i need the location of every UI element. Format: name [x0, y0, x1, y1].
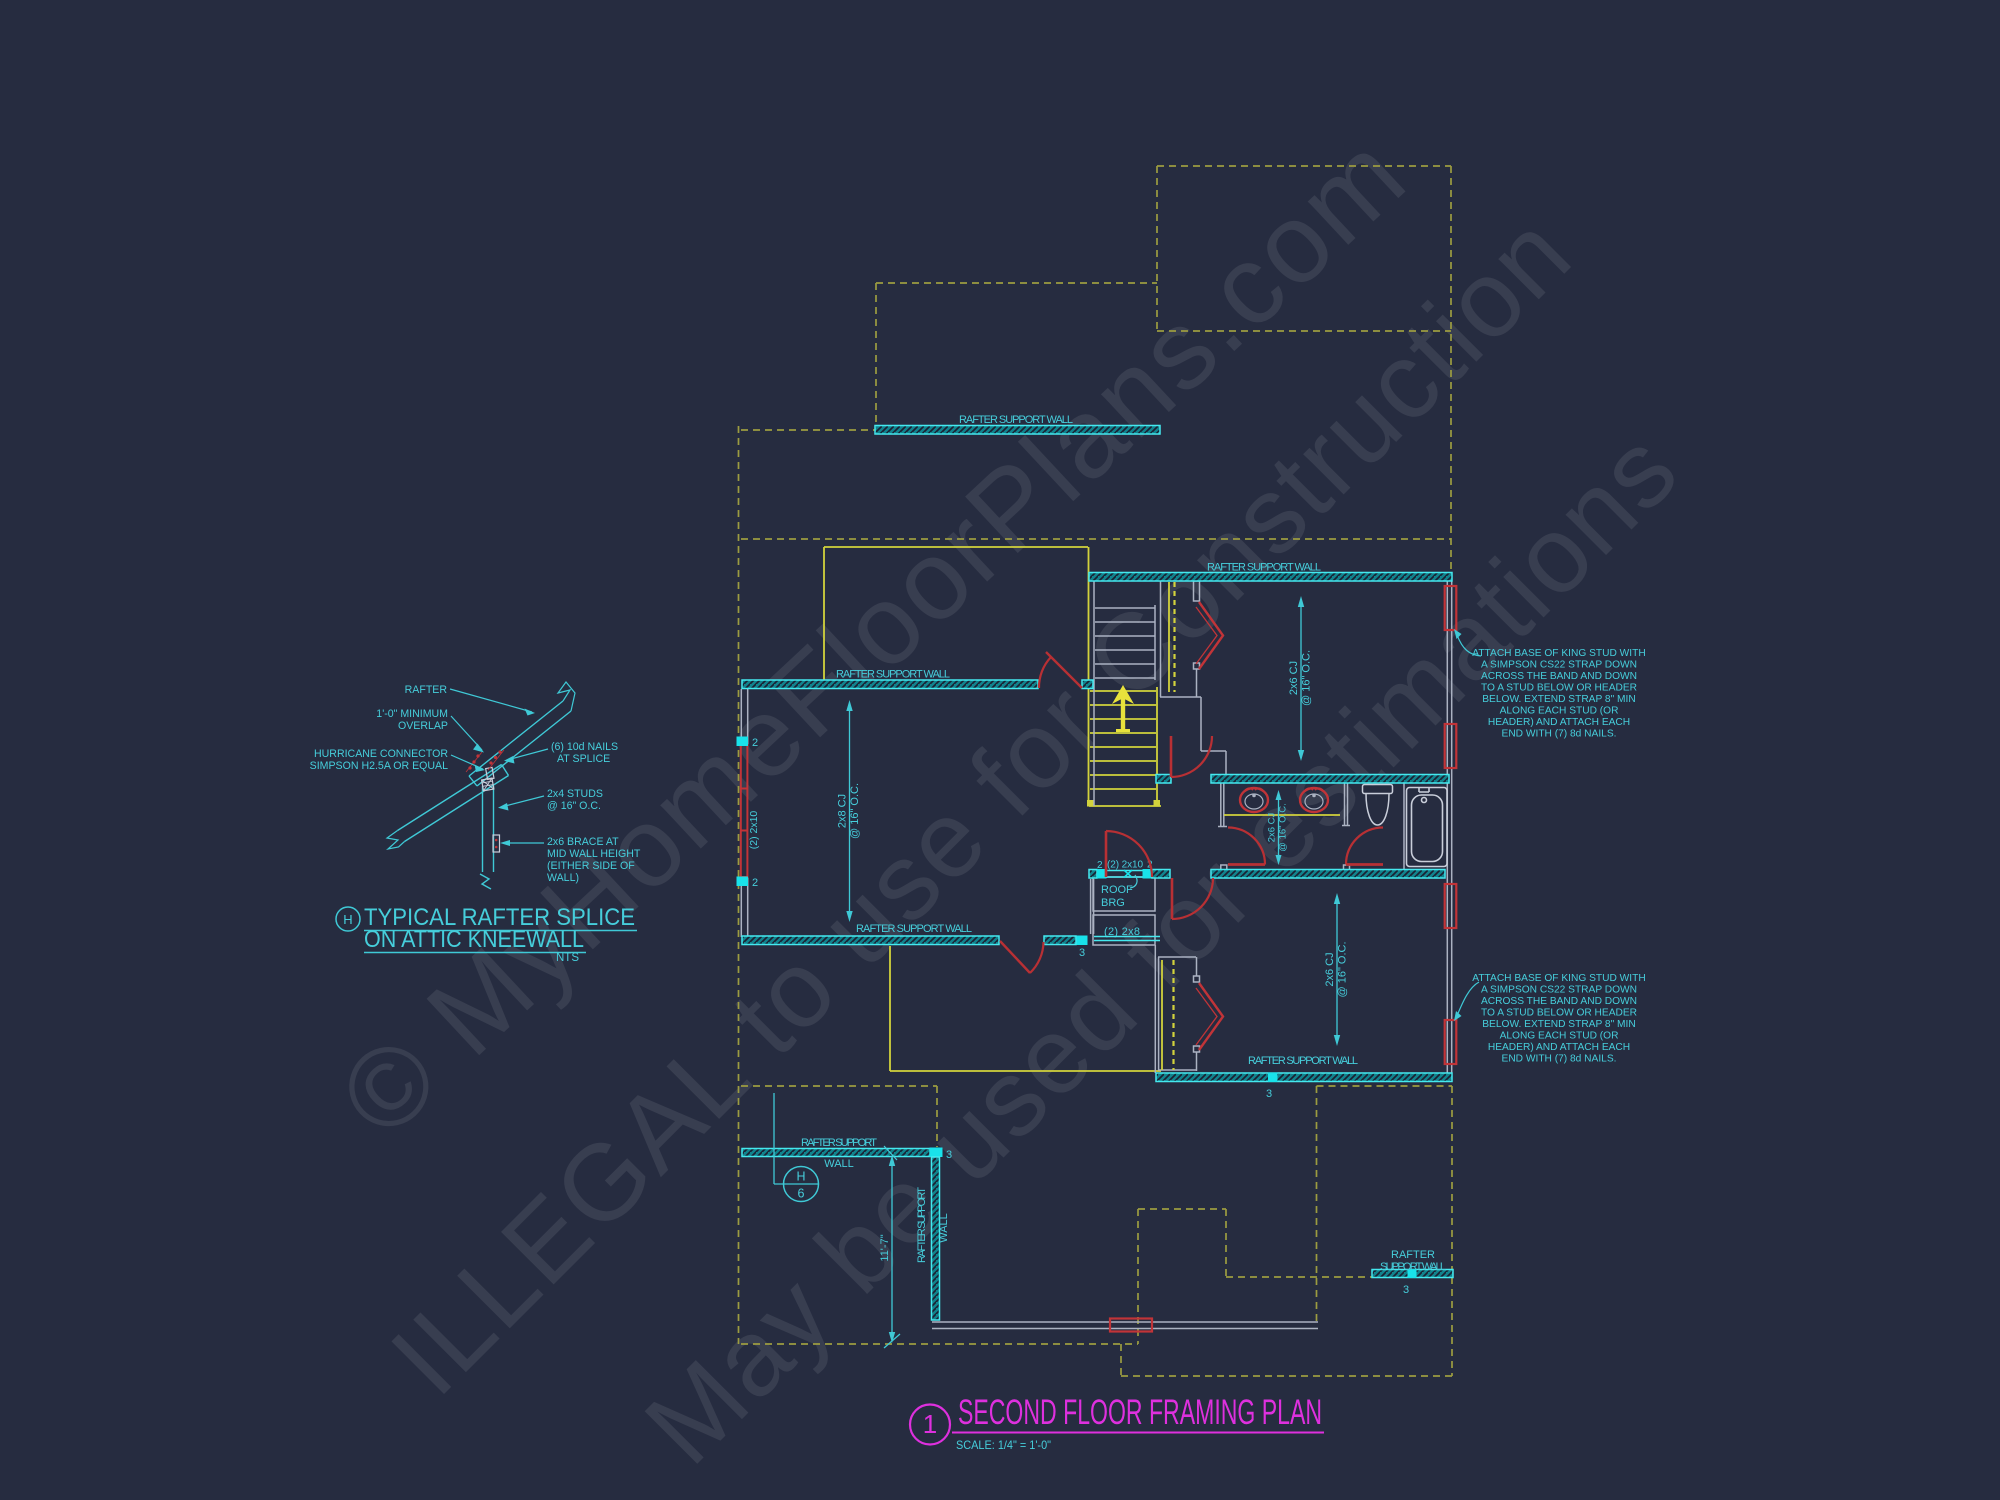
svg-text:WALL): WALL) — [547, 872, 579, 884]
svg-text:AT SPLICE: AT SPLICE — [557, 753, 610, 765]
svg-text:TO A STUD BELOW OR HEADER: TO A STUD BELOW OR HEADER — [1481, 683, 1637, 694]
svg-text:WALL: WALL — [824, 1158, 854, 1170]
svg-text:HURRICANE CONNECTOR: HURRICANE CONNECTOR — [314, 748, 448, 760]
svg-text:2x6 CJ: 2x6 CJ — [1267, 812, 1278, 842]
svg-text:6: 6 — [798, 1187, 805, 1201]
svg-text:2x6 BRACE AT: 2x6 BRACE AT — [547, 836, 619, 848]
svg-text:A SIMPSON CS22 STRAP DOWN: A SIMPSON CS22 STRAP DOWN — [1481, 660, 1637, 671]
svg-text:@ 16" O.C.: @ 16" O.C. — [1278, 803, 1289, 851]
svg-text:RAFTER SUPPORT: RAFTER SUPPORT — [916, 1187, 928, 1263]
svg-text:OVERLAP: OVERLAP — [398, 720, 448, 732]
svg-text:2: 2 — [1097, 860, 1103, 871]
svg-text:2x8 CJ: 2x8 CJ — [837, 794, 849, 828]
svg-text:TO A STUD BELOW OR HEADER: TO A STUD BELOW OR HEADER — [1481, 1008, 1637, 1019]
svg-text:END WITH (7) 8d NAILS.: END WITH (7) 8d NAILS. — [1502, 729, 1617, 740]
svg-text:2x6 CJ: 2x6 CJ — [1324, 952, 1336, 986]
svg-text:ON ATTIC KNEEWALL: ON ATTIC KNEEWALL — [364, 926, 584, 953]
svg-text:SECOND FLOOR FRAMING PLAN: SECOND FLOOR FRAMING PLAN — [958, 1393, 1322, 1432]
svg-text:END WITH (7) 8d NAILS.: END WITH (7) 8d NAILS. — [1502, 1054, 1617, 1065]
svg-text:(2) 2x10: (2) 2x10 — [1107, 860, 1143, 871]
svg-text:RAFTER SUPPORT: RAFTER SUPPORT — [801, 1137, 877, 1149]
svg-text:3: 3 — [1403, 1284, 1409, 1296]
svg-text:@ 16" O.C.: @ 16" O.C. — [1337, 941, 1349, 997]
svg-text:ROOF: ROOF — [1101, 884, 1133, 896]
svg-text:SUPPORT WALL: SUPPORT WALL — [1380, 1261, 1446, 1273]
svg-text:ACROSS THE BAND AND DOWN: ACROSS THE BAND AND DOWN — [1481, 671, 1637, 682]
svg-text:RAFTER: RAFTER — [405, 684, 448, 696]
svg-text:ACROSS THE BAND AND DOWN: ACROSS THE BAND AND DOWN — [1481, 996, 1637, 1007]
svg-text:HEADER) AND ATTACH EACH: HEADER) AND ATTACH EACH — [1488, 1042, 1630, 1053]
svg-text:@ 16" O.C.: @ 16" O.C. — [547, 800, 601, 812]
svg-text:ALONG EACH STUD (OR: ALONG EACH STUD (OR — [1500, 1031, 1619, 1042]
svg-text:2: 2 — [752, 737, 758, 749]
svg-text:3: 3 — [1079, 947, 1085, 959]
svg-text:ALONG EACH STUD (OR: ALONG EACH STUD (OR — [1500, 706, 1619, 717]
svg-text:BRG: BRG — [1101, 897, 1125, 909]
svg-text:NTS: NTS — [556, 952, 579, 964]
svg-text:11'-7": 11'-7" — [879, 1234, 891, 1261]
svg-text:RAFTER SUPPORT WALL: RAFTER SUPPORT WALL — [959, 414, 1073, 426]
svg-text:3: 3 — [1266, 1088, 1272, 1100]
svg-text:WALL: WALL — [938, 1213, 950, 1243]
svg-text:BELOW. EXTEND STRAP 8" MIN: BELOW. EXTEND STRAP 8" MIN — [1482, 694, 1635, 705]
svg-text:@ 16" O.C.: @ 16" O.C. — [849, 783, 861, 839]
svg-text:H: H — [796, 1170, 805, 1184]
svg-text:RAFTER SUPPORT WALL: RAFTER SUPPORT WALL — [1248, 1055, 1358, 1067]
svg-text:@ 16" O.C.: @ 16" O.C. — [1301, 650, 1313, 706]
svg-text:(2) 2x10: (2) 2x10 — [748, 811, 760, 850]
svg-text:BELOW. EXTEND STRAP 8" MIN: BELOW. EXTEND STRAP 8" MIN — [1482, 1019, 1635, 1030]
svg-text:RAFTER: RAFTER — [1391, 1249, 1435, 1261]
svg-text:3: 3 — [946, 1149, 952, 1161]
svg-text:A SIMPSON CS22 STRAP DOWN: A SIMPSON CS22 STRAP DOWN — [1481, 985, 1637, 996]
svg-text:H: H — [343, 912, 352, 927]
svg-text:RAFTER SUPPORT WALL: RAFTER SUPPORT WALL — [1207, 562, 1321, 574]
svg-text:HEADER) AND ATTACH EACH: HEADER) AND ATTACH EACH — [1488, 717, 1630, 728]
svg-text:1: 1 — [923, 1409, 937, 1439]
svg-text:2x6 CJ: 2x6 CJ — [1288, 661, 1300, 695]
svg-text:(6) 10d NAILS: (6) 10d NAILS — [551, 741, 618, 753]
svg-text:2x4 STUDS: 2x4 STUDS — [547, 788, 603, 800]
svg-text:SCALE: 1/4" = 1'-0": SCALE: 1/4" = 1'-0" — [956, 1438, 1051, 1452]
svg-text:RAFTER SUPPORT WALL: RAFTER SUPPORT WALL — [836, 669, 950, 681]
svg-text:1'-0" MINIMUM: 1'-0" MINIMUM — [376, 708, 448, 720]
svg-text:2: 2 — [752, 877, 758, 889]
svg-text:(EITHER SIDE OF: (EITHER SIDE OF — [547, 860, 635, 872]
svg-text:MID WALL HEIGHT: MID WALL HEIGHT — [547, 848, 641, 860]
svg-text:RAFTER SUPPORT WALL: RAFTER SUPPORT WALL — [856, 923, 972, 935]
svg-text:ATTACH BASE OF KING STUD WITH: ATTACH BASE OF KING STUD WITH — [1472, 973, 1645, 984]
svg-text:ATTACH BASE OF KING STUD WITH: ATTACH BASE OF KING STUD WITH — [1472, 648, 1645, 659]
svg-text:SIMPSON H2.5A OR EQUAL: SIMPSON H2.5A OR EQUAL — [310, 760, 448, 772]
